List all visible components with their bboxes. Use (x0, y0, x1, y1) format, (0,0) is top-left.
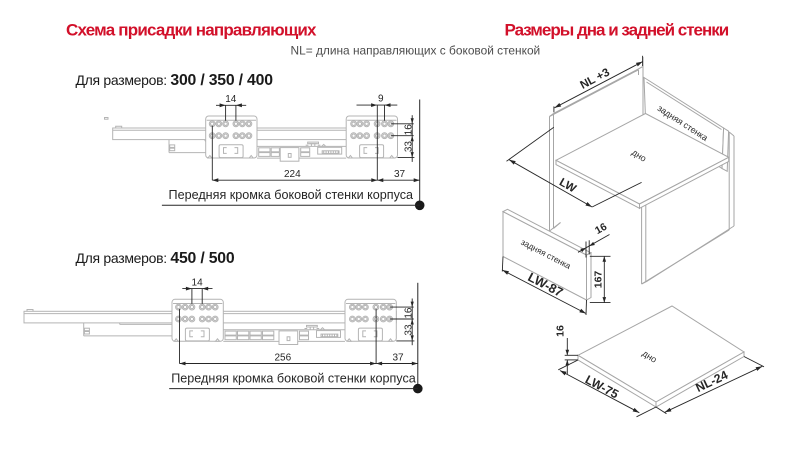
svg-text:16: 16 (555, 325, 567, 337)
svg-text:Схема присадки направляющих: Схема присадки направляющих (66, 21, 317, 40)
svg-text:33: 33 (404, 141, 415, 153)
svg-text:9: 9 (378, 94, 384, 105)
svg-text:16: 16 (404, 307, 415, 319)
svg-text:14: 14 (225, 94, 237, 105)
svg-text:Для размеров:: Для размеров: (76, 250, 167, 266)
svg-text:NL= длина направляющих с боков: NL= длина направляющих с боковой стенкой (291, 43, 541, 57)
svg-text:167: 167 (593, 271, 605, 289)
svg-text:Передняя кромка боковой стенки: Передняя кромка боковой стенки корпуса (171, 371, 416, 385)
svg-text:37: 37 (392, 352, 404, 363)
svg-text:33: 33 (404, 324, 415, 336)
svg-text:Размеры дна и задней стенки: Размеры дна и задней стенки (505, 21, 729, 40)
svg-text:Для размеров:: Для размеров: (76, 72, 167, 88)
svg-text:300 / 350 / 400: 300 / 350 / 400 (170, 72, 273, 89)
svg-text:14: 14 (192, 277, 204, 288)
svg-text:37: 37 (394, 169, 406, 180)
svg-text:Передняя кромка боковой стенки: Передняя кромка боковой стенки корпуса (169, 188, 414, 202)
svg-text:16: 16 (404, 124, 415, 136)
svg-text:224: 224 (284, 169, 301, 180)
svg-text:450 / 500: 450 / 500 (170, 250, 234, 267)
svg-text:256: 256 (274, 352, 291, 363)
